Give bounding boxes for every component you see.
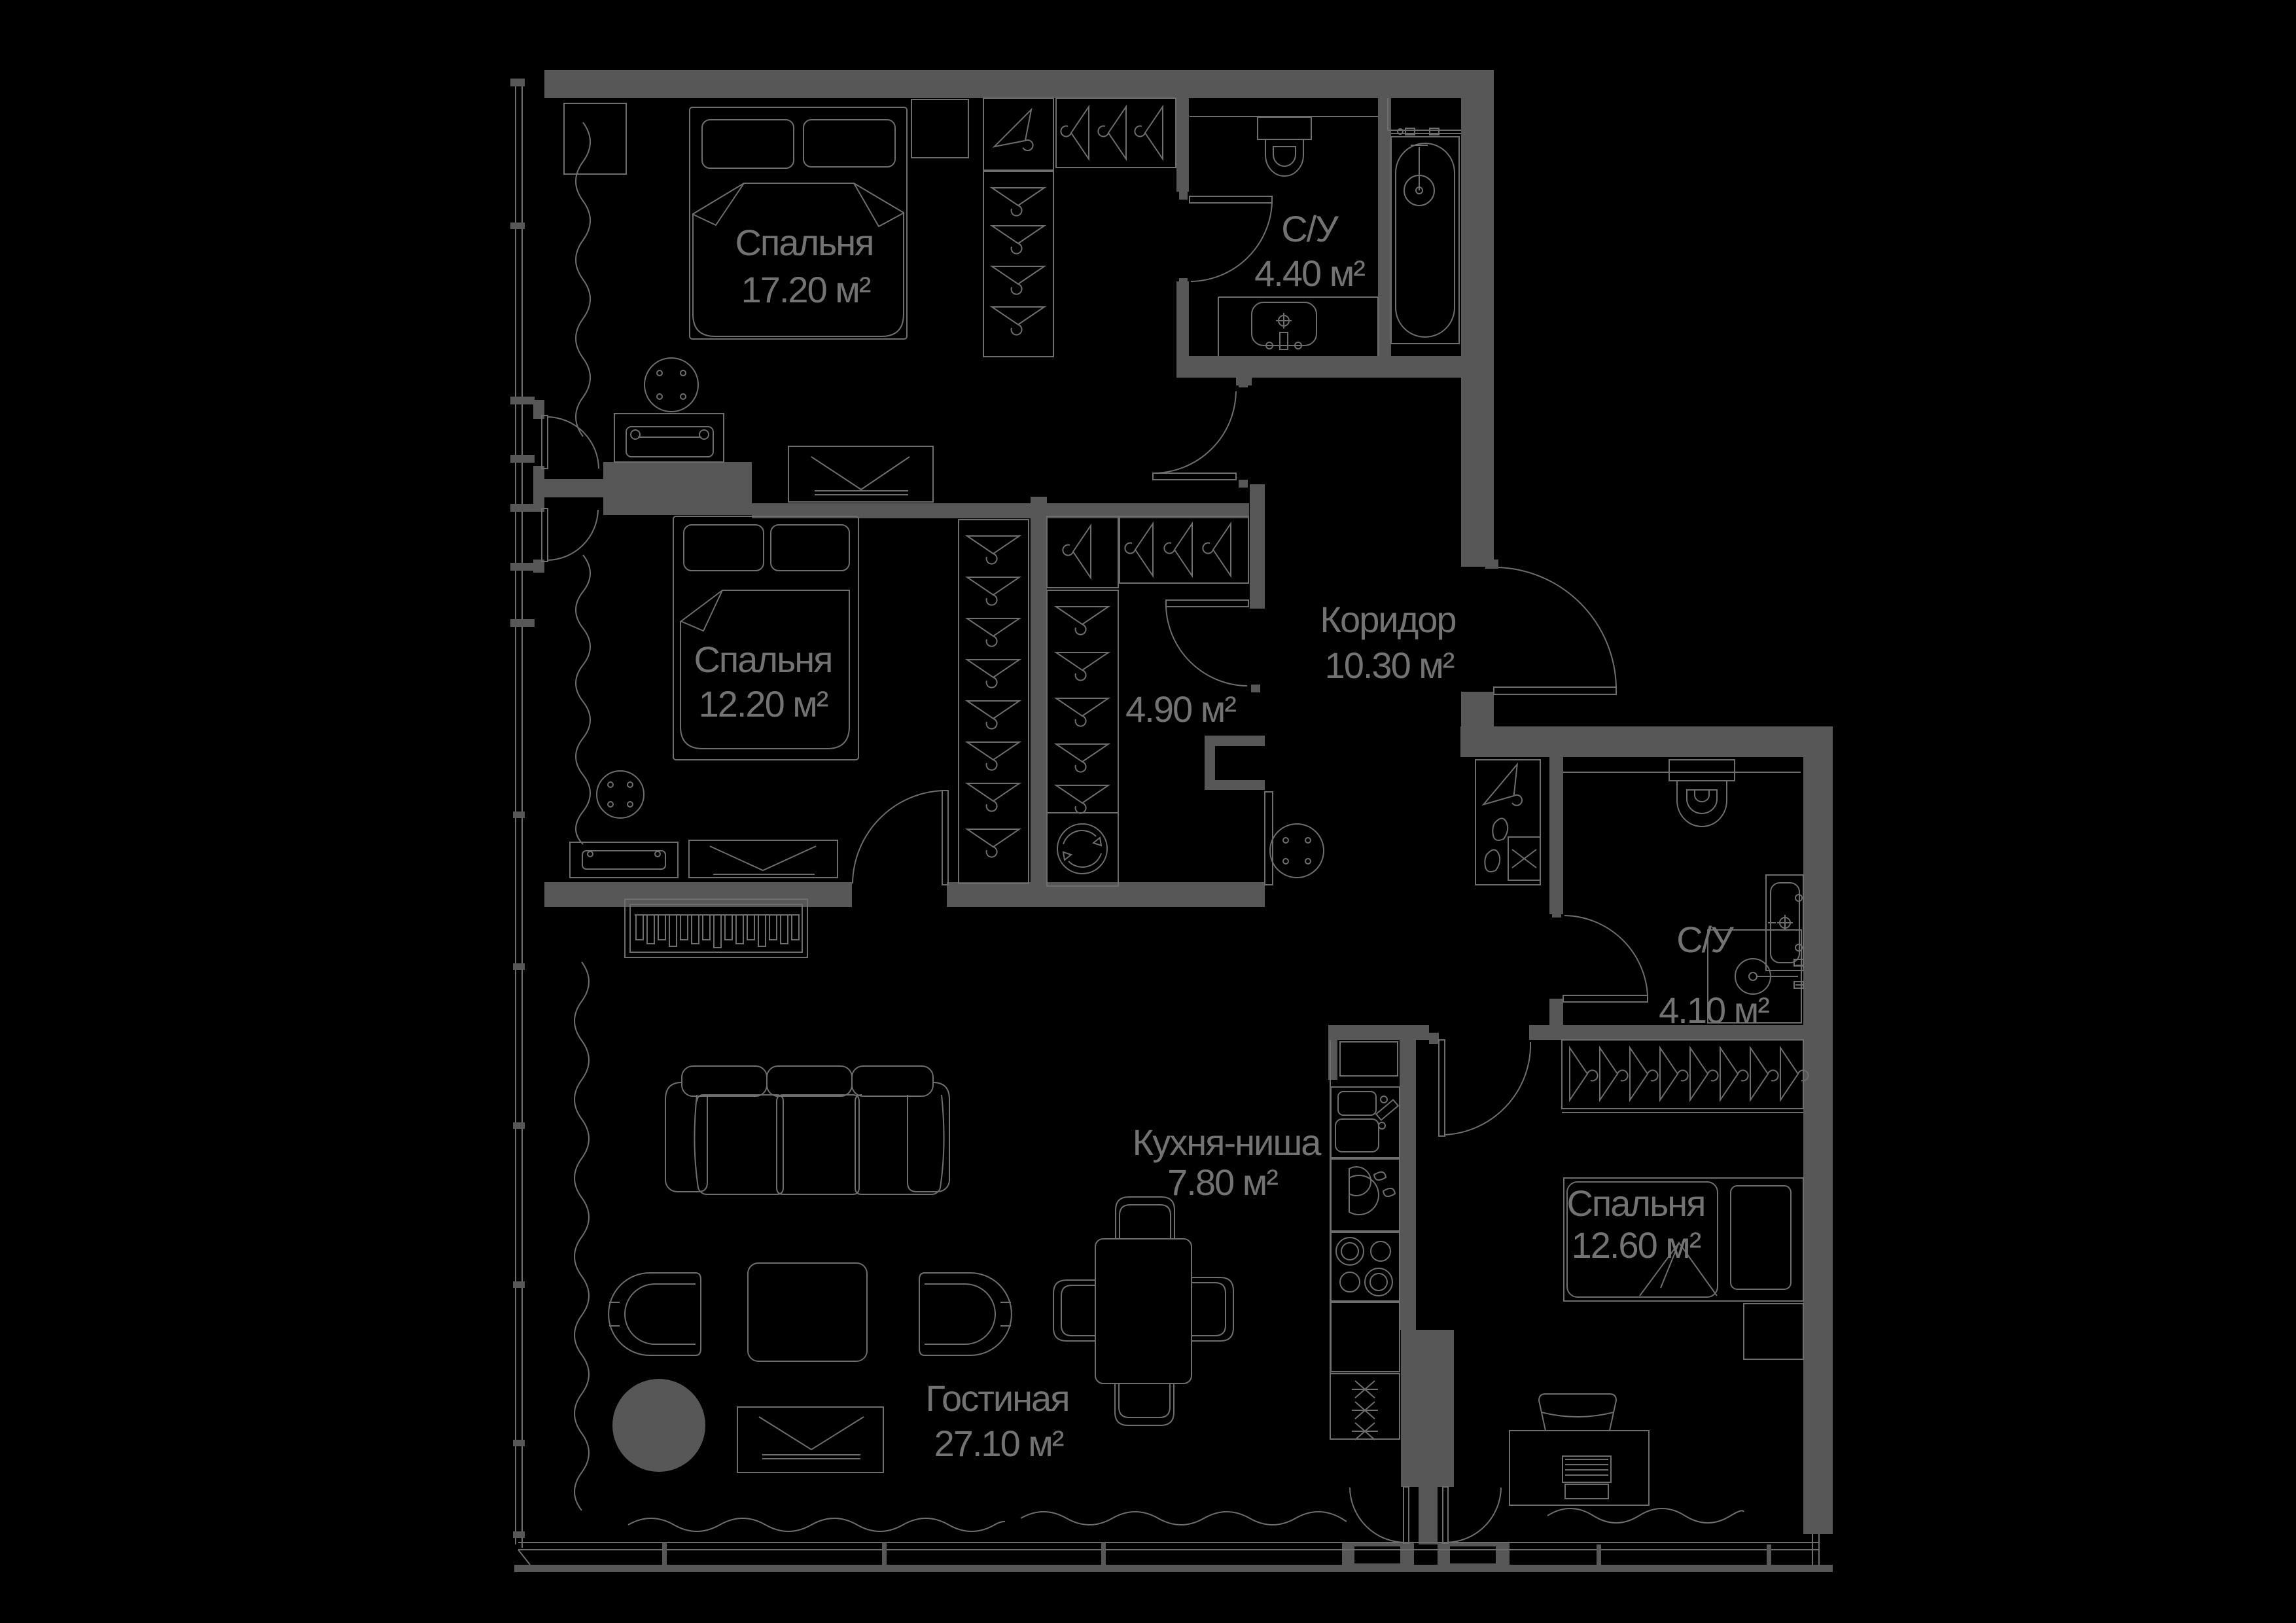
svg-text:10.30 м²: 10.30 м² <box>1325 645 1455 686</box>
svg-text:С/У: С/У <box>1676 919 1734 960</box>
svg-text:Гостиная: Гостиная <box>925 1378 1069 1419</box>
svg-text:27.10 м²: 27.10 м² <box>934 1423 1064 1464</box>
svg-text:Спальня: Спальня <box>735 222 873 263</box>
svg-text:12.20 м²: 12.20 м² <box>699 683 828 724</box>
svg-text:7.80 м²: 7.80 м² <box>1167 1162 1278 1203</box>
svg-text:4.40 м²: 4.40 м² <box>1254 253 1365 294</box>
svg-text:Спальня: Спальня <box>694 639 832 680</box>
svg-text:С/У: С/У <box>1281 208 1339 249</box>
svg-text:Кухня-ниша: Кухня-ниша <box>1133 1122 1322 1163</box>
svg-text:17.20 м²: 17.20 м² <box>741 269 871 310</box>
svg-text:4.10 м²: 4.10 м² <box>1659 990 1769 1031</box>
svg-text:Коридор: Коридор <box>1320 599 1455 640</box>
svg-text:12.60 м²: 12.60 м² <box>1572 1224 1701 1266</box>
svg-text:Спальня: Спальня <box>1566 1183 1704 1224</box>
svg-text:4.90 м²: 4.90 м² <box>1125 688 1236 730</box>
